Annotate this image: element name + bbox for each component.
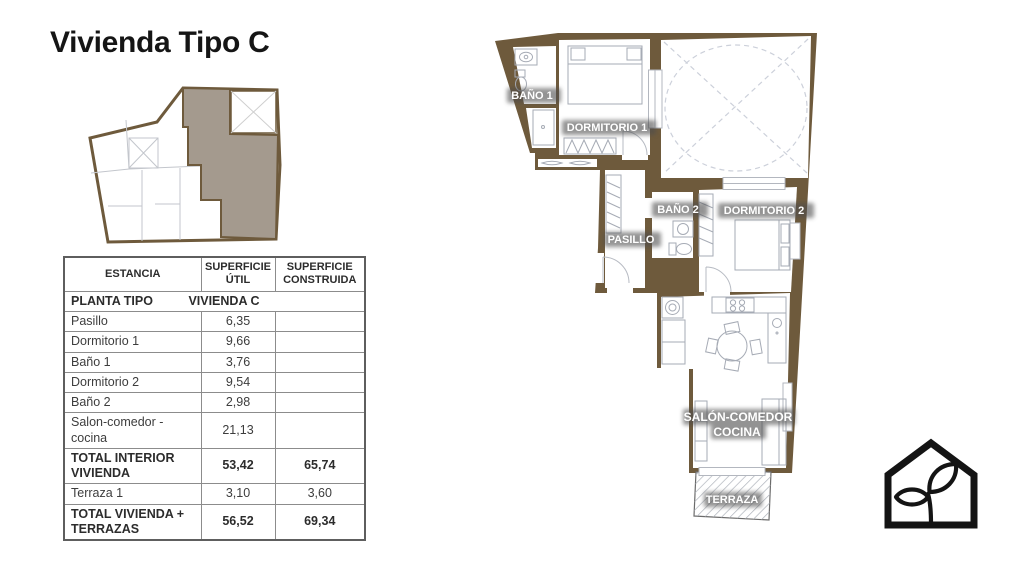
area-table-body: Pasillo6,35Dormitorio 19,66Baño 13,76Dor… [64, 312, 365, 541]
area-value-cell: 53,42 [201, 448, 275, 484]
brochure-page: { "page": { "title": "Vivienda Tipo C" }… [0, 0, 1024, 576]
label-terraza: TERRAZA [706, 494, 759, 506]
room-pasillo-floor [605, 170, 645, 288]
page-title: Vivienda Tipo C [50, 26, 269, 60]
keyplan [85, 84, 295, 252]
area-value-cell [275, 332, 365, 352]
header-estancia: ESTANCIA [64, 257, 201, 291]
label-pasillo: PASILLO [608, 234, 655, 246]
room-name-cell: TOTAL INTERIOR VIVIENDA [64, 448, 201, 484]
floorplan-main: BAÑO 1 DORMITORIO 1 BAÑO 2 DORMITORIO 2 … [480, 20, 840, 560]
area-value-cell [275, 393, 365, 413]
label-cocina: COCINA [713, 425, 761, 439]
area-value-cell: 3,76 [201, 352, 275, 372]
table-header-row: ESTANCIA SUPERFICIE ÚTIL SUPERFICIE CONS… [64, 257, 365, 291]
area-value-cell [275, 312, 365, 332]
room-name-cell: Dormitorio 2 [64, 372, 201, 392]
room-name-cell: Dormitorio 1 [64, 332, 201, 352]
area-value-cell: 69,34 [275, 504, 365, 540]
label-dormitorio-2: DORMITORIO 2 [724, 205, 804, 217]
table-row: TOTAL VIVIENDA + TERRAZAS56,5269,34 [64, 504, 365, 540]
room-name-cell: Salon-comedor - cocina [64, 413, 201, 449]
table-section-row: PLANTA TIPO VIVIENDA C [64, 291, 365, 311]
area-value-cell [275, 352, 365, 372]
table-row: Dormitorio 29,54 [64, 372, 365, 392]
area-value-cell: 65,74 [275, 448, 365, 484]
sprout-icon [896, 464, 956, 524]
section-vivienda-c: VIVIENDA C [188, 294, 259, 309]
area-value-cell [275, 413, 365, 449]
room-name-cell: Terraza 1 [64, 484, 201, 504]
area-value-cell: 21,13 [201, 413, 275, 449]
eco-house-logo [884, 438, 978, 530]
label-bano-1: BAÑO 1 [511, 89, 553, 102]
label-salon-comedor: SALÓN-COMEDOR [684, 409, 793, 424]
label-dormitorio-1: DORMITORIO 1 [567, 122, 647, 134]
area-value-cell: 9,54 [201, 372, 275, 392]
keyplan-patio [231, 91, 276, 133]
area-value-cell: 2,98 [201, 393, 275, 413]
area-value-cell: 56,52 [201, 504, 275, 540]
room-name-cell: Baño 1 [64, 352, 201, 372]
area-value-cell [275, 372, 365, 392]
room-dormitorio2-floor [699, 187, 797, 292]
area-value-cell: 3,10 [201, 484, 275, 504]
table-row: TOTAL INTERIOR VIVIENDA53,4265,74 [64, 448, 365, 484]
room-name-cell: TOTAL VIVIENDA + TERRAZAS [64, 504, 201, 540]
header-superficie-util: SUPERFICIE ÚTIL [201, 257, 275, 291]
area-table: ESTANCIA SUPERFICIE ÚTIL SUPERFICIE CONS… [63, 256, 366, 541]
room-name-cell: Baño 2 [64, 393, 201, 413]
room-name-cell: Pasillo [64, 312, 201, 332]
room-closet-strip-floor [538, 159, 597, 167]
section-planta-tipo: PLANTA TIPO [71, 294, 153, 309]
area-value-cell: 3,60 [275, 484, 365, 504]
table-row: Dormitorio 19,66 [64, 332, 365, 352]
table-row: Salon-comedor - cocina21,13 [64, 413, 365, 449]
header-superficie-construida: SUPERFICIE CONSTRUIDA [275, 257, 365, 291]
label-bano-2: BAÑO 2 [657, 203, 699, 216]
table-row: Pasillo6,35 [64, 312, 365, 332]
room-salon-floor [661, 293, 790, 468]
table-row: Terraza 13,103,60 [64, 484, 365, 504]
area-value-cell: 6,35 [201, 312, 275, 332]
table-row: Baño 13,76 [64, 352, 365, 372]
area-table-wrap: ESTANCIA SUPERFICIE ÚTIL SUPERFICIE CONS… [63, 256, 364, 541]
room-patio-floor [661, 36, 811, 178]
area-value-cell: 9,66 [201, 332, 275, 352]
table-row: Baño 22,98 [64, 393, 365, 413]
